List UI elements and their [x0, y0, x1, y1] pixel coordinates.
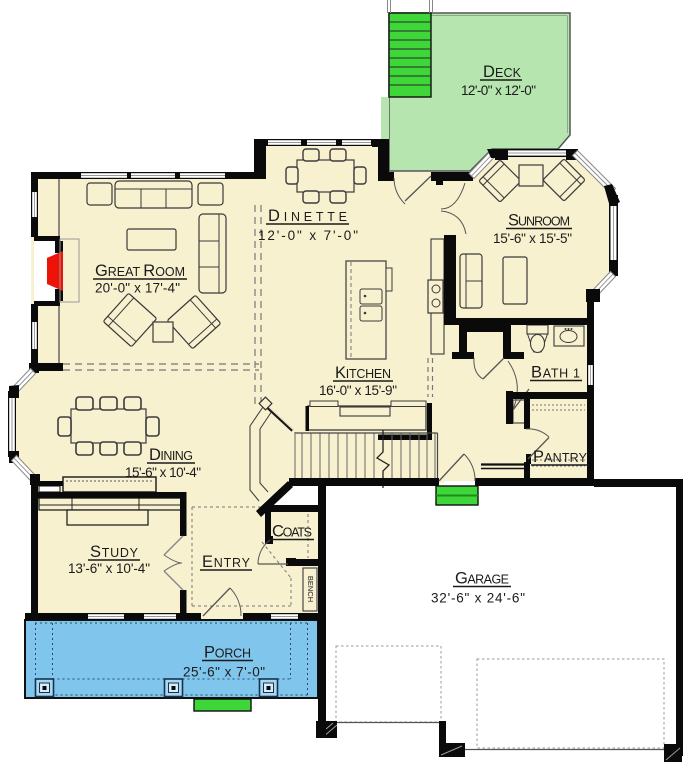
svg-text:KITCHEN: KITCHEN: [335, 364, 391, 382]
svg-text:SUNROOM: SUNROOM: [508, 212, 570, 230]
svg-text:BATH 1: BATH 1: [531, 364, 580, 382]
svg-text:13'-6" x 10'-4": 13'-6" x 10'-4": [68, 561, 150, 576]
svg-text:COATS: COATS: [272, 523, 312, 541]
svg-text:15'-6" x 10'-4": 15'-6" x 10'-4": [125, 465, 201, 480]
svg-text:PORCH: PORCH: [204, 644, 251, 662]
svg-text:DINING: DINING: [149, 446, 193, 464]
svg-text:16'-0" x 15'-9": 16'-0" x 15'-9": [319, 383, 397, 398]
svg-text:GARAGE: GARAGE: [455, 570, 509, 588]
svg-text:15'-6" x 15'-5": 15'-6" x 15'-5": [493, 231, 572, 246]
svg-text:32'-6" x 24'-6": 32'-6" x 24'-6": [431, 591, 525, 606]
svg-text:25'-6" x 7'-0": 25'-6" x 7'-0": [183, 665, 265, 680]
svg-text:12'-0" x 12'-0": 12'-0" x 12'-0": [461, 83, 536, 98]
svg-text:20'-0" x 17'-4": 20'-0" x 17'-4": [95, 281, 180, 296]
svg-text:STUDY: STUDY: [90, 543, 139, 561]
svg-text:ENTRY: ENTRY: [202, 553, 251, 571]
svg-text:DECK: DECK: [483, 63, 522, 81]
svg-text:BENCH: BENCH: [306, 576, 315, 602]
svg-text:PANTRY: PANTRY: [533, 448, 588, 466]
svg-text:GREAT ROOM: GREAT ROOM: [95, 262, 185, 280]
